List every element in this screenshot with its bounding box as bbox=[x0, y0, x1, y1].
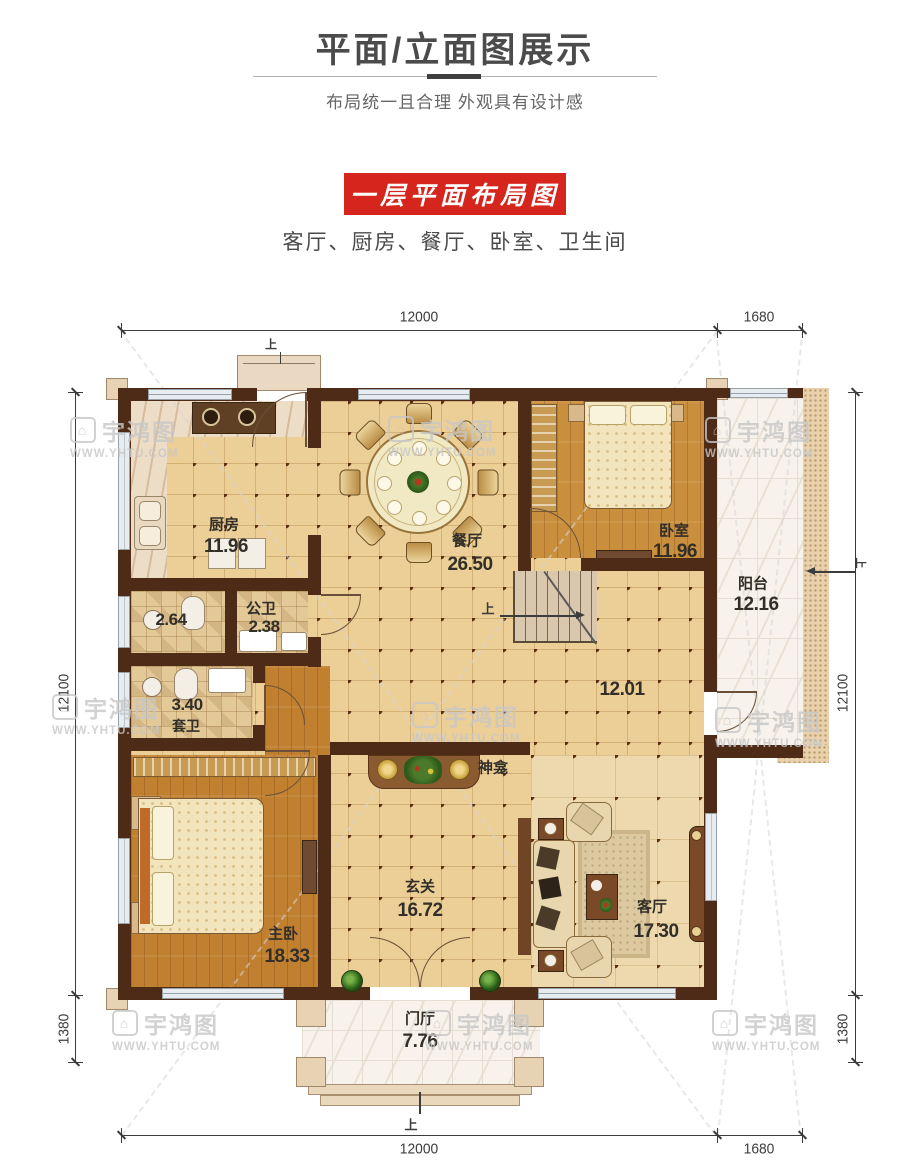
room-label-balcony-area: 12.16 bbox=[733, 594, 778, 616]
bathroom-sink bbox=[281, 632, 307, 651]
wall bbox=[118, 578, 321, 591]
stairs bbox=[513, 571, 597, 643]
window bbox=[162, 988, 284, 999]
coffee-table bbox=[586, 874, 618, 920]
dimension-line-bottom bbox=[121, 1135, 802, 1136]
room-label-kitchen-area: 11.96 bbox=[204, 536, 248, 558]
room-label-entry-area: 16.72 bbox=[397, 900, 442, 922]
coffee-table-flowers bbox=[600, 898, 612, 912]
room-label-bath-small-area: 2.64 bbox=[155, 610, 186, 630]
wall bbox=[253, 666, 265, 683]
room-label-shrine-name: 神龛 bbox=[478, 757, 508, 778]
dimension-label: 12000 bbox=[400, 1141, 438, 1158]
window bbox=[730, 388, 788, 398]
bed-headboard-throw bbox=[140, 808, 150, 924]
room-label-bath-ensuite-area: 3.40 bbox=[171, 695, 202, 715]
dimension-label: 1380 bbox=[835, 1014, 852, 1045]
pillow bbox=[589, 405, 626, 425]
wall bbox=[225, 591, 237, 653]
wall bbox=[704, 388, 717, 692]
room-label-dining-area: 26.50 bbox=[447, 554, 492, 576]
up-marker: 上 bbox=[404, 1115, 417, 1134]
balcony-marker-line bbox=[812, 571, 856, 573]
dimension-label: 12000 bbox=[400, 309, 438, 326]
lamp bbox=[544, 822, 557, 835]
wall bbox=[118, 738, 265, 751]
altar-bowl bbox=[449, 759, 470, 780]
porch-column bbox=[514, 997, 544, 1027]
room-label-kitchen-name: 厨房 bbox=[209, 514, 239, 535]
window bbox=[148, 389, 232, 400]
room-label-bedroom-name: 卧室 bbox=[659, 520, 689, 541]
entrance-direction-line bbox=[419, 1092, 421, 1114]
dresser bbox=[302, 840, 317, 894]
title-divider-accent bbox=[427, 74, 481, 79]
page-title: 平面/立面图展示 bbox=[0, 22, 910, 73]
up-marker: 上 bbox=[265, 336, 277, 353]
porch-column bbox=[296, 997, 326, 1027]
page-subtitle: 布局统一且合理 外观具有设计感 bbox=[0, 88, 910, 113]
dining-chair bbox=[406, 542, 432, 563]
wardrobe bbox=[531, 404, 557, 512]
window bbox=[118, 838, 130, 924]
back-door-steps bbox=[237, 355, 321, 391]
tv-cabinet bbox=[689, 826, 705, 942]
porch-column bbox=[296, 1057, 326, 1087]
sink-basin bbox=[139, 501, 161, 521]
altar-bowl bbox=[377, 759, 398, 780]
balcony-marker-arrowhead bbox=[806, 567, 815, 575]
plate bbox=[377, 476, 392, 491]
plate bbox=[412, 511, 427, 526]
balcony-bottom-wall bbox=[717, 745, 803, 758]
wall bbox=[118, 653, 321, 666]
dimension-label: 1680 bbox=[744, 1141, 775, 1158]
plate bbox=[436, 451, 451, 466]
wall bbox=[518, 558, 531, 571]
dimension-label: 12100 bbox=[56, 674, 73, 712]
vase bbox=[691, 830, 702, 841]
door-leaf bbox=[264, 685, 266, 725]
floor-plan: 上 上 上 上 厨房 bbox=[40, 300, 870, 1170]
stove-burner bbox=[238, 408, 256, 426]
room-label-master-name: 主卧 bbox=[268, 923, 298, 944]
room-label-hallway-area: 12.01 bbox=[599, 679, 644, 701]
bay-marker-line bbox=[280, 352, 281, 364]
altar-flowers bbox=[404, 756, 442, 784]
bathroom-sink bbox=[208, 668, 246, 693]
stairs-direction-line bbox=[500, 615, 580, 617]
table-centerpiece bbox=[407, 471, 429, 493]
room-label-living-area: 17.30 bbox=[633, 921, 678, 943]
room-label-bath-public-area: 2.38 bbox=[248, 617, 279, 637]
sofa-pillow bbox=[536, 846, 560, 870]
dimension-line-left bbox=[75, 392, 76, 1063]
plate bbox=[387, 500, 402, 515]
wall bbox=[253, 725, 265, 738]
room-label-entry-name: 玄关 bbox=[405, 876, 435, 897]
plate bbox=[447, 476, 462, 491]
rooms-summary: 客厅、厨房、餐厅、卧室、卫生间 bbox=[0, 226, 910, 256]
pillow bbox=[152, 872, 174, 926]
shower-head bbox=[142, 677, 162, 697]
kitchen-counter-left bbox=[131, 401, 167, 589]
room-label-bath-ensuite-name: 套卫 bbox=[172, 716, 200, 736]
porch-column bbox=[514, 1057, 544, 1087]
window bbox=[118, 432, 130, 550]
window bbox=[118, 596, 130, 648]
pillow bbox=[152, 806, 174, 860]
room-label-balcony-name: 阳台 bbox=[738, 573, 768, 594]
sink-basin bbox=[139, 526, 161, 546]
dining-chair bbox=[406, 403, 432, 424]
room-label-bedroom-area: 11.96 bbox=[653, 541, 697, 563]
plate bbox=[436, 500, 451, 515]
coffee-table-plate bbox=[591, 880, 602, 891]
stairs-direction-arrowhead bbox=[576, 611, 585, 619]
vase bbox=[691, 926, 702, 937]
lamp bbox=[544, 954, 557, 967]
room-label-dining-name: 餐厅 bbox=[452, 530, 482, 551]
dimension-label: 1680 bbox=[744, 309, 775, 326]
dimension-line-top bbox=[121, 330, 802, 331]
door-leaf bbox=[530, 508, 532, 558]
window bbox=[538, 988, 676, 999]
wall bbox=[308, 388, 321, 448]
room-label-living-name: 客厅 bbox=[637, 896, 667, 917]
wall bbox=[318, 755, 331, 987]
section-banner: 一层平面布局图 bbox=[344, 173, 566, 215]
door-leaf bbox=[265, 750, 310, 752]
potted-plant bbox=[479, 970, 501, 992]
back-door-steps-line bbox=[243, 363, 315, 364]
window bbox=[118, 672, 130, 728]
sofa-pillow bbox=[538, 876, 561, 899]
dining-chair bbox=[340, 470, 361, 496]
up-marker: 上 bbox=[481, 599, 494, 618]
room-label-porch-area: 7.76 bbox=[403, 1031, 438, 1053]
plate bbox=[412, 441, 427, 456]
plate bbox=[387, 451, 402, 466]
dimension-label: 1380 bbox=[56, 1014, 73, 1045]
door-leaf bbox=[321, 594, 361, 596]
dimension-line-right bbox=[855, 392, 856, 1063]
room-label-master-area: 18.33 bbox=[264, 946, 309, 968]
pillow bbox=[630, 405, 667, 425]
potted-plant bbox=[341, 970, 363, 992]
door-leaf bbox=[717, 691, 757, 693]
door-leaf bbox=[305, 392, 307, 447]
room-label-bath-public-name: 公卫 bbox=[246, 598, 276, 619]
room-label-porch-name: 门厅 bbox=[405, 1008, 435, 1029]
dining-chair bbox=[478, 470, 499, 496]
dimension-label: 12100 bbox=[835, 674, 852, 712]
window bbox=[358, 389, 470, 400]
living-feature-wall bbox=[518, 818, 531, 955]
window bbox=[705, 813, 717, 901]
shrine-wall bbox=[330, 742, 530, 755]
stove-burner bbox=[202, 408, 220, 426]
